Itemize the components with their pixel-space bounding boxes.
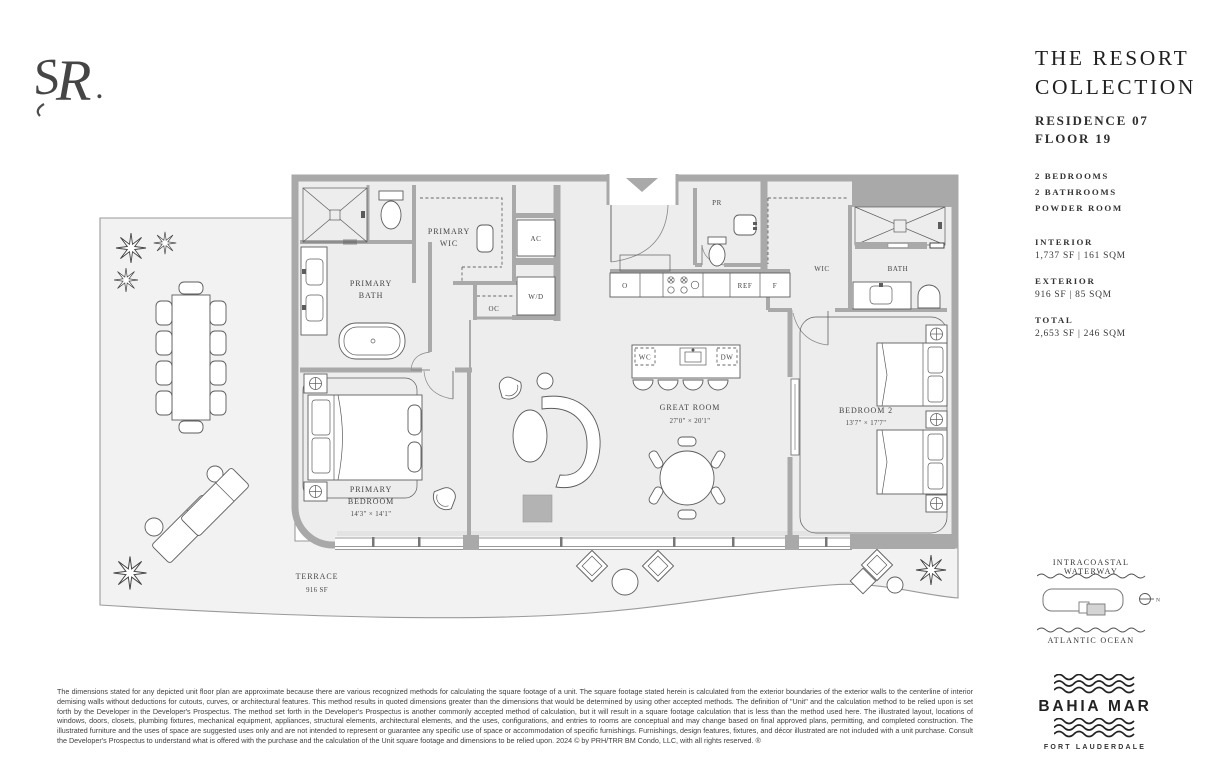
brand-name: BAHIA MAR: [1030, 698, 1160, 716]
residence-number: RESIDENCE 07: [1035, 112, 1205, 130]
plant-icon: [154, 232, 177, 255]
area-value: 1,737 SF | 161 SQM: [1035, 251, 1205, 261]
floorplan-drawing: PRIMARY BATH PRIMARY WIC AC W/D OC PR: [90, 165, 970, 635]
feature-item: 2 BATHROOMS: [1035, 184, 1205, 200]
area-value: 916 SF | 85 SQM: [1035, 290, 1205, 300]
primary-bath-label: PRIMARY: [350, 279, 392, 288]
monogram-icon: S R .: [26, 30, 118, 122]
area-exterior: EXTERIOR 916 SF | 85 SQM: [1035, 276, 1205, 300]
title-line-2: COLLECTION: [1035, 73, 1205, 102]
feature-item: POWDER ROOM: [1035, 200, 1205, 216]
plant-icon: [114, 557, 147, 590]
great-room-dims: 27'0" × 20'1": [670, 418, 711, 425]
thick-corner-wall: [852, 178, 955, 207]
wic2-label: WIC: [814, 265, 829, 273]
coffee-table: [513, 410, 547, 462]
terrace-side-table: [145, 518, 163, 536]
building-footprint-diagram: N: [1041, 584, 1165, 620]
primary-bath-label: BATH: [359, 291, 384, 300]
unit-location-marker: [1087, 604, 1105, 615]
oven-label: O: [622, 282, 628, 290]
primary-water-closet: [379, 191, 403, 229]
logo-waves-icon: [1054, 674, 1136, 694]
side-table: [537, 373, 553, 389]
terrace-label: TERRACE: [296, 572, 339, 581]
bathtub: [339, 323, 405, 359]
title-line-1: THE RESORT: [1035, 44, 1205, 73]
great-room-label: GREAT ROOM: [660, 403, 721, 412]
area-label: EXTERIOR: [1035, 276, 1205, 286]
pr-label: PR: [712, 199, 722, 207]
bedroom2-label: BEDROOM 2: [839, 406, 893, 415]
bed2a: [877, 343, 947, 406]
area-label: TOTAL: [1035, 315, 1205, 325]
bahia-mar-logo: BAHIA MAR FORT LAUDERDALE: [1030, 672, 1160, 762]
ref-label: REF: [738, 282, 753, 290]
feature-list: 2 BEDROOMS 2 BATHROOMS POWDER ROOM: [1035, 168, 1205, 216]
wd-label: W/D: [528, 293, 543, 301]
floor-number: FLOOR 19: [1035, 130, 1205, 148]
dishwasher-label: DW: [721, 354, 734, 362]
primary-bed: [308, 395, 422, 480]
resort-monogram-logo: S R .: [26, 30, 118, 122]
legal-disclaimer: The dimensions stated for any depicted u…: [57, 687, 973, 746]
bedroom2-dims: 13'7" × 17'7": [846, 420, 887, 427]
info-panel: THE RESORT COLLECTION RESIDENCE 07 FLOOR…: [1035, 44, 1205, 339]
primary-bedroom-label: BEDROOM: [348, 497, 394, 506]
north-compass-icon: N: [1140, 594, 1161, 605]
kitchen-island: [632, 345, 740, 390]
freezer-label: F: [773, 282, 778, 290]
area-label: INTERIOR: [1035, 237, 1205, 247]
oc-label: OC: [489, 305, 500, 313]
primary-wic-label: PRIMARY: [428, 227, 470, 236]
primary-bedroom-dims: 14'3" × 14'1": [351, 511, 392, 518]
primary-wic-label: WIC: [440, 239, 458, 248]
site-locator: INTRACOASTAL WATERWAY N ATLANTIC OCEAN: [1035, 556, 1165, 658]
plant-icon: [116, 233, 146, 263]
bath2-toilet: [918, 285, 940, 308]
bed2b: [877, 430, 947, 494]
feature-item: 2 BEDROOMS: [1035, 168, 1205, 184]
water-wave-icon: [1037, 626, 1147, 634]
svg-text:.: .: [96, 69, 105, 106]
terrace-area-label: 916 SF: [306, 587, 328, 594]
primary-vanity: [301, 247, 327, 335]
wine-cooler-label: WC: [639, 354, 651, 362]
brand-city: FORT LAUDERDALE: [1030, 744, 1160, 751]
unit-outline: [295, 178, 955, 545]
ocean-label: ATLANTIC OCEAN: [1035, 636, 1147, 645]
logo-waves-icon: [1054, 718, 1136, 738]
area-total: TOTAL 2,653 SF | 246 SQM: [1035, 315, 1205, 339]
area-interior: INTERIOR 1,737 SF | 161 SQM: [1035, 237, 1205, 261]
floorplan-sheet: S R . THE RESORT COLLECTION RESIDENCE 07…: [0, 0, 1228, 779]
primary-bedroom-label: PRIMARY: [350, 485, 392, 494]
collection-title: THE RESORT COLLECTION: [1035, 44, 1205, 102]
north-label: N: [1156, 598, 1160, 604]
tv-console: [523, 495, 552, 522]
plant-icon: [114, 268, 138, 292]
area-value: 2,653 SF | 246 SQM: [1035, 329, 1205, 339]
water-wave-icon: [1037, 572, 1147, 580]
plant-icon: [916, 555, 946, 585]
bath2-label: BATH: [888, 265, 909, 273]
svg-text:R: R: [55, 48, 91, 113]
ac-label: AC: [531, 235, 542, 243]
